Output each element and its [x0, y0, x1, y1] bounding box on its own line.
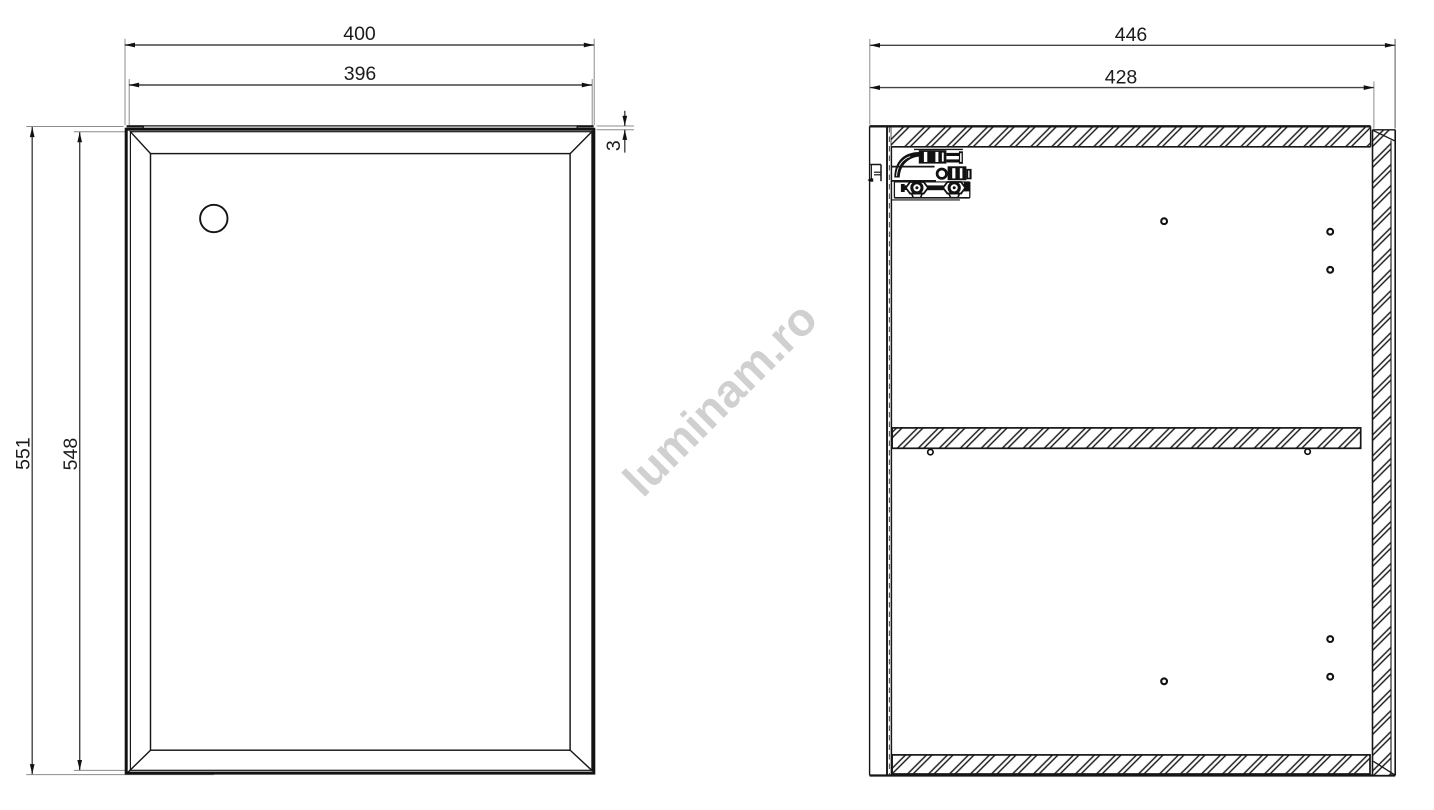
svg-text:428: 428	[1105, 66, 1138, 88]
svg-text:3: 3	[603, 140, 625, 151]
svg-text:396: 396	[344, 63, 377, 85]
svg-text:551: 551	[12, 437, 34, 470]
svg-text:luminam.ro: luminam.ro	[613, 292, 827, 506]
svg-text:400: 400	[343, 23, 376, 45]
svg-text:446: 446	[1115, 24, 1148, 46]
svg-text:548: 548	[60, 438, 82, 471]
